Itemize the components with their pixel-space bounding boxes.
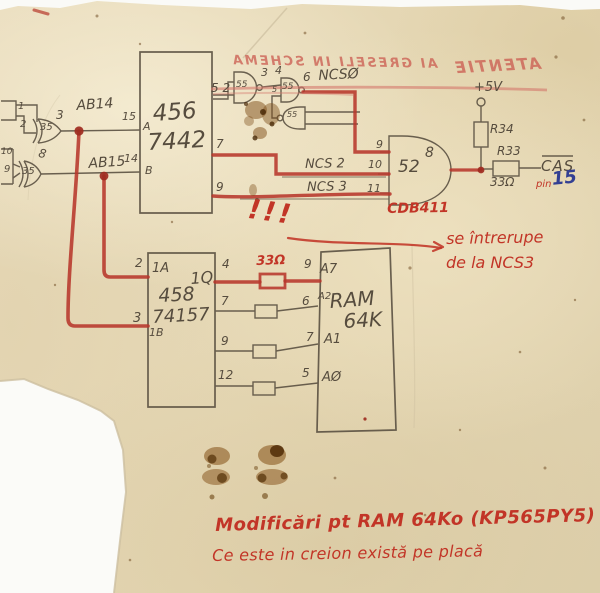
mux-pin2: 2: [135, 257, 143, 269]
r33-label: R33: [497, 145, 521, 157]
emphasis-marks: !!!: [246, 196, 295, 229]
decoder-pin15: 15: [122, 111, 136, 122]
nand2-pin-in1: 4: [275, 65, 282, 76]
torn-corner-bottom-left: [0, 379, 126, 593]
mux-resistor-value: 33Ω: [256, 254, 286, 268]
nand3-chip-label: 55: [287, 111, 297, 119]
ram-pin6: 6: [302, 295, 310, 307]
ram-pin5: 5: [302, 367, 310, 379]
xor1-pin-in1: 1: [18, 102, 24, 112]
ncs2-pin10: 10: [368, 159, 382, 170]
mux-pin3: 3: [133, 312, 141, 325]
nand2-chip-label: 55: [282, 83, 293, 92]
mux-label-1a: 1A: [152, 262, 169, 275]
ram-a7: A7: [320, 263, 337, 276]
schematic-drawing: [0, 0, 600, 593]
ram-pin7: 7: [306, 331, 314, 343]
signal-ncs2: NCS 2: [305, 157, 345, 171]
cas-pin-number: 15: [551, 168, 578, 189]
mux-pin4: 4: [222, 258, 230, 270]
xor1-chip-label: 35: [40, 123, 53, 133]
ram-size: 64K: [343, 309, 383, 331]
mux-pin7: 7: [221, 295, 229, 307]
nand2-pin-out: 6: [303, 71, 311, 83]
interrupt-note-line1: se întrerupe: [446, 229, 544, 247]
decoder-input-b: B: [145, 165, 153, 176]
xor2-pin-in2: 9: [4, 165, 10, 175]
decoder-pin14: 14: [124, 153, 138, 164]
torn-edge-top: [0, 0, 600, 10]
decoder-part-prefix: 456: [152, 100, 197, 126]
r34-label: R34: [490, 123, 514, 135]
decoder-top-pins: 5 2: [211, 82, 230, 94]
xor1-pin-out: 3: [56, 109, 64, 121]
xor2-chip-label: 35: [22, 167, 35, 177]
nand1-pin-out: 3: [261, 67, 268, 78]
mux-pin9: 9: [221, 335, 229, 347]
ncs3-pin11: 11: [367, 183, 381, 194]
mux-part-number: 74157: [152, 306, 210, 327]
nand2-pin-in2: 5: [272, 86, 277, 94]
decoder-pin7: 7: [216, 138, 224, 150]
signal-ab15: AB15: [88, 154, 126, 171]
scanned-schematic-page: AI GRESELI IN SCHEMA ATENTIE 1 2 35 3 AB…: [0, 0, 600, 593]
signal-ncs0: NCSØ: [318, 67, 359, 83]
mux-pin12: 12: [218, 369, 233, 381]
ram-pin9: 9: [304, 258, 312, 270]
gate52-pin8: 8: [425, 146, 434, 160]
signal-ncs3: NCS 3: [307, 180, 347, 194]
mux-label-1b: 1B: [149, 327, 164, 338]
cas-pin-word: pin: [536, 180, 551, 190]
ram-a0: AØ: [322, 371, 341, 384]
xor2-pin-in1: 10: [1, 148, 12, 157]
gate52-part-name: CDB411: [387, 201, 449, 216]
bleedthrough-header-text: ATENTIE: [452, 56, 543, 77]
nand1-chip-label: 55: [236, 81, 247, 90]
r33-value: 33Ω: [490, 176, 514, 188]
decoder-part-number: 7442: [147, 129, 207, 155]
vcc-label: +5V: [474, 81, 502, 94]
gate52-pin9: 9: [376, 139, 383, 150]
signal-ab14: AB14: [76, 96, 114, 113]
mux-part-prefix: 458: [158, 285, 195, 306]
interrupt-note-line2: de la NCS3: [446, 255, 534, 271]
gate52-chip-label: 52: [398, 159, 420, 176]
xor1-pin-in2: 2: [20, 120, 26, 130]
ram-a1: A1: [324, 333, 341, 346]
decoder-pin9: 9: [216, 181, 224, 193]
footer-note-line2: Ce este in creion există pe placă: [212, 543, 483, 564]
